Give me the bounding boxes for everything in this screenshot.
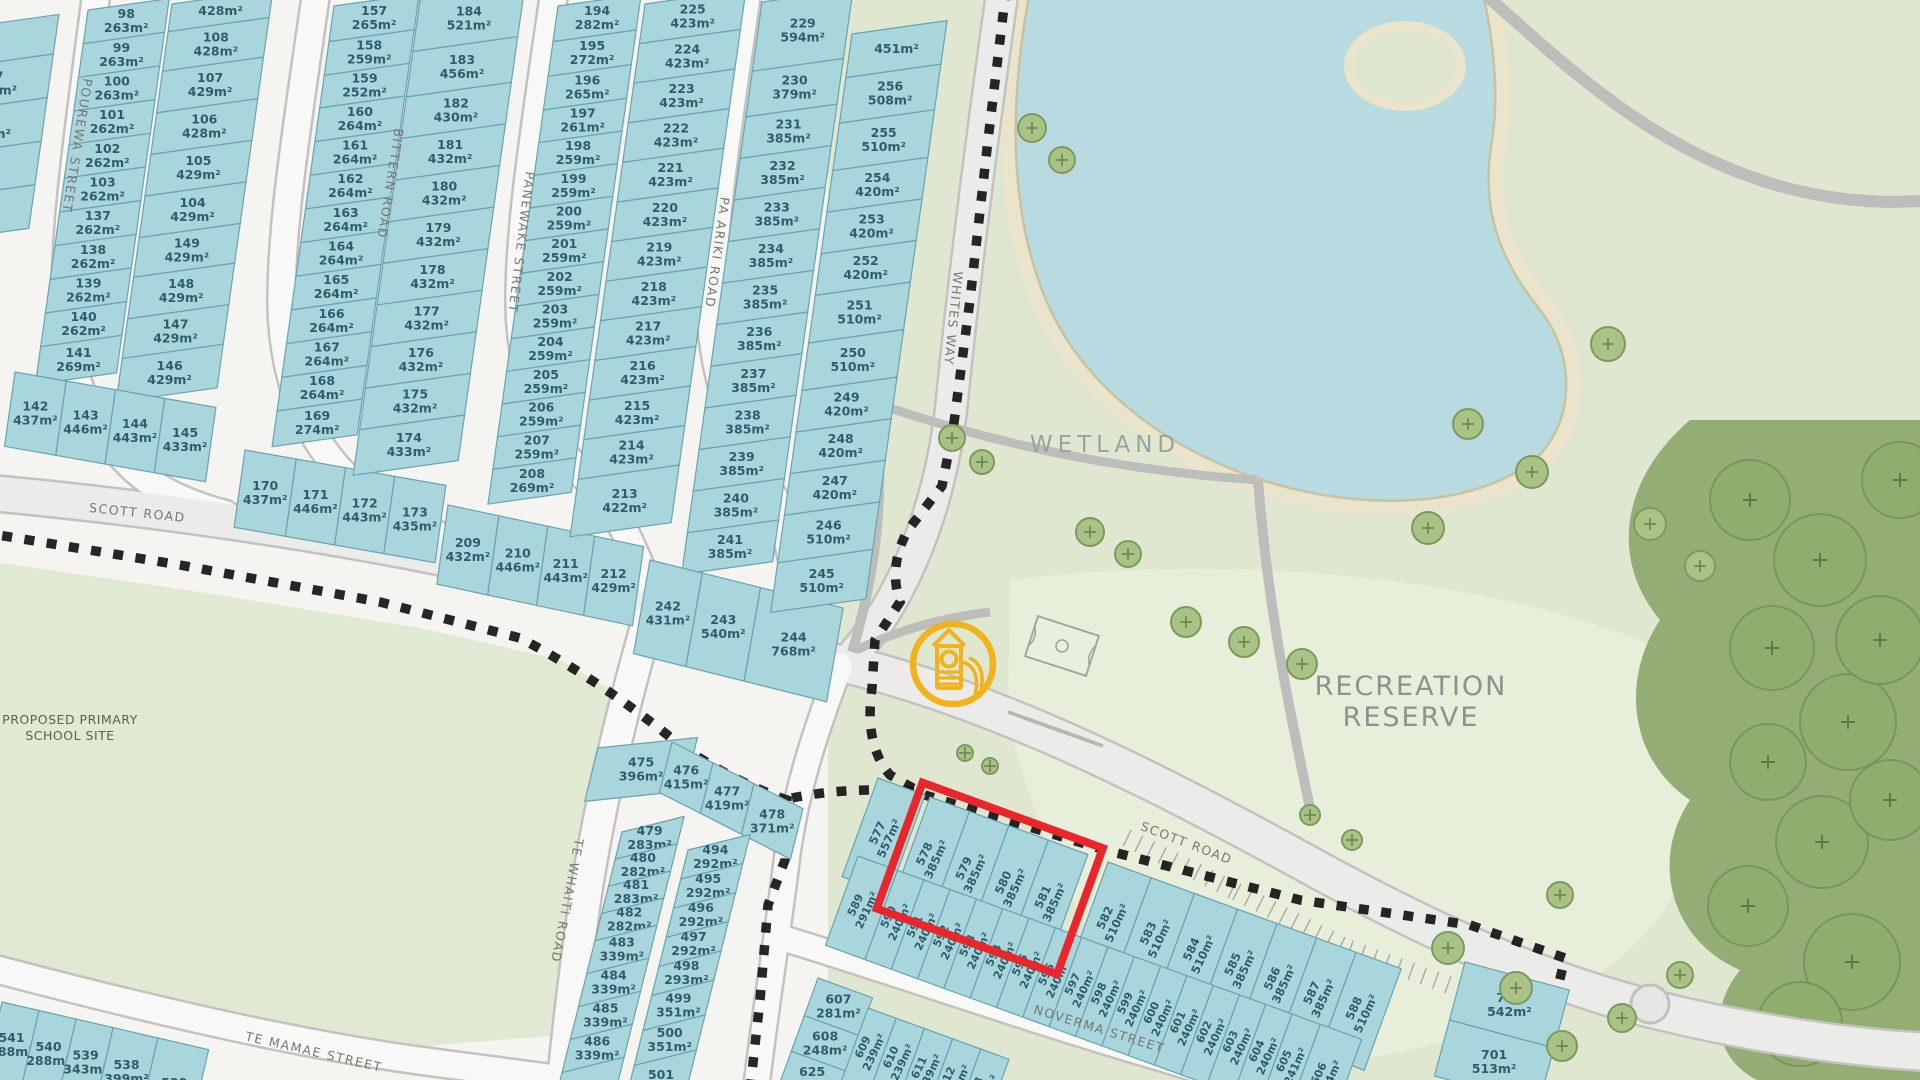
lot-label: 501 bbox=[648, 1067, 674, 1080]
lot-label: 451m² bbox=[874, 41, 919, 56]
lot-label: 428m² bbox=[198, 3, 243, 18]
subdivision-plan-map: 77386m²76387m²98263m²99263m²100263m²1012… bbox=[0, 0, 1920, 1080]
wetland-label: WETLAND bbox=[1030, 432, 1180, 458]
recreation-reserve-label-line2: RESERVE bbox=[1343, 702, 1480, 733]
lot-label: 530 bbox=[161, 1075, 187, 1080]
school-site-label-line2: SCHOOL SITE bbox=[25, 728, 114, 743]
map-generated-layers: 77386m²76387m²98263m²99263m²100263m²1012… bbox=[0, 0, 1920, 1080]
recreation-reserve-label-line1: RECREATION bbox=[1315, 671, 1508, 702]
school-site-label-line1: PROPOSED PRIMARY bbox=[2, 712, 138, 727]
